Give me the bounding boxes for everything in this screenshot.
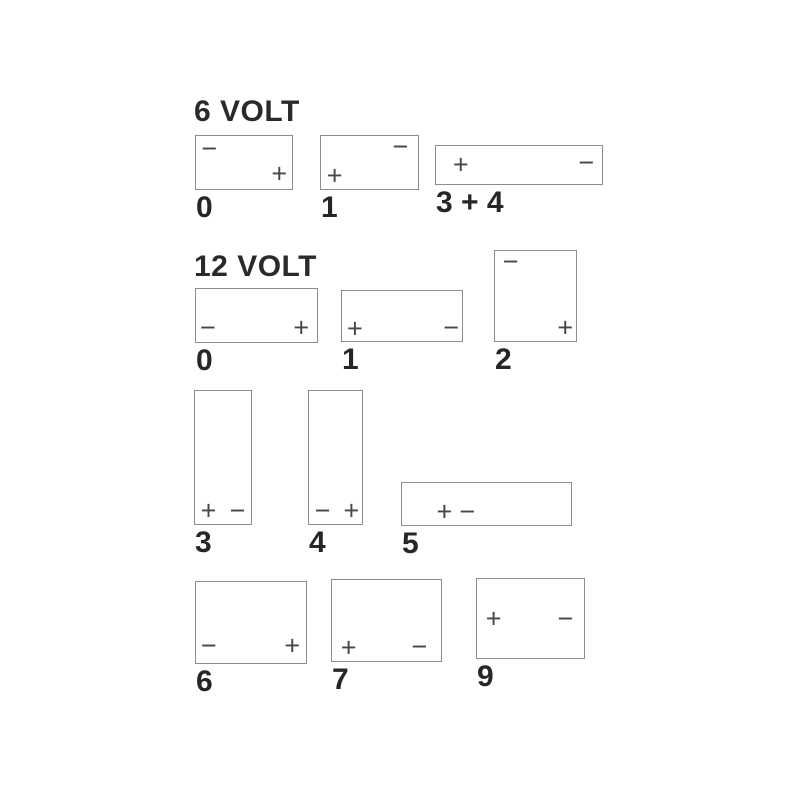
battery-layout-label: 5 xyxy=(402,529,419,559)
battery-layout-label: 7 xyxy=(332,665,349,695)
plus-terminal-icon: + xyxy=(293,315,309,342)
battery-box-4: −+ xyxy=(308,390,363,525)
plus-terminal-icon: + xyxy=(327,163,343,190)
battery-layout-label: 6 xyxy=(196,667,213,697)
section-title-12-volt: 12 VOLT xyxy=(194,252,317,282)
plus-terminal-icon: + xyxy=(453,152,469,179)
battery-box-9: +− xyxy=(476,578,585,659)
minus-terminal-icon: − xyxy=(392,133,408,160)
battery-layout-label: 9 xyxy=(477,662,494,692)
minus-terminal-icon: − xyxy=(443,314,459,341)
battery-box-3+4: +− xyxy=(435,145,603,185)
battery-layout-label: 0 xyxy=(196,193,213,223)
minus-terminal-icon: − xyxy=(200,315,216,342)
battery-box-7: +− xyxy=(331,579,442,662)
battery-box-6: −+ xyxy=(195,581,307,664)
battery-layout-label: 3 xyxy=(195,528,212,558)
plus-terminal-icon: + xyxy=(557,315,573,342)
battery-box-2: −+ xyxy=(494,250,577,342)
plus-terminal-icon: + xyxy=(271,160,287,187)
section-title-6-volt: 6 VOLT xyxy=(194,97,300,127)
plus-terminal-icon: + xyxy=(201,498,217,525)
battery-layout-label: 3 + 4 xyxy=(436,188,504,218)
minus-terminal-icon: − xyxy=(230,498,246,525)
plus-terminal-icon: + xyxy=(284,633,300,660)
minus-terminal-icon: − xyxy=(459,498,475,525)
battery-box-1: +− xyxy=(341,290,463,342)
minus-terminal-icon: − xyxy=(578,150,594,177)
battery-box-1: −+ xyxy=(320,135,419,190)
battery-box-0: −+ xyxy=(195,135,293,190)
battery-layout-label: 0 xyxy=(196,346,213,376)
battery-terminal-layout-diagram: 6 VOLT−+0−+1+−3 + 412 VOLT−+0+−1−+2+−3−+… xyxy=(0,0,800,800)
minus-terminal-icon: − xyxy=(315,498,331,525)
plus-terminal-icon: + xyxy=(344,498,360,525)
battery-box-0: −+ xyxy=(195,288,318,343)
battery-layout-label: 1 xyxy=(321,193,338,223)
minus-terminal-icon: − xyxy=(201,633,217,660)
battery-box-3: +− xyxy=(194,390,252,525)
plus-terminal-icon: + xyxy=(486,605,502,632)
minus-terminal-icon: − xyxy=(503,248,519,275)
plus-terminal-icon: + xyxy=(341,635,357,662)
minus-terminal-icon: − xyxy=(201,135,217,162)
plus-terminal-icon: + xyxy=(347,315,363,342)
plus-terminal-icon: + xyxy=(437,498,453,525)
minus-terminal-icon: − xyxy=(557,605,573,632)
battery-box-5: +− xyxy=(401,482,572,526)
minus-terminal-icon: − xyxy=(412,634,428,661)
battery-layout-label: 4 xyxy=(309,528,326,558)
battery-layout-label: 1 xyxy=(342,345,359,375)
battery-layout-label: 2 xyxy=(495,345,512,375)
